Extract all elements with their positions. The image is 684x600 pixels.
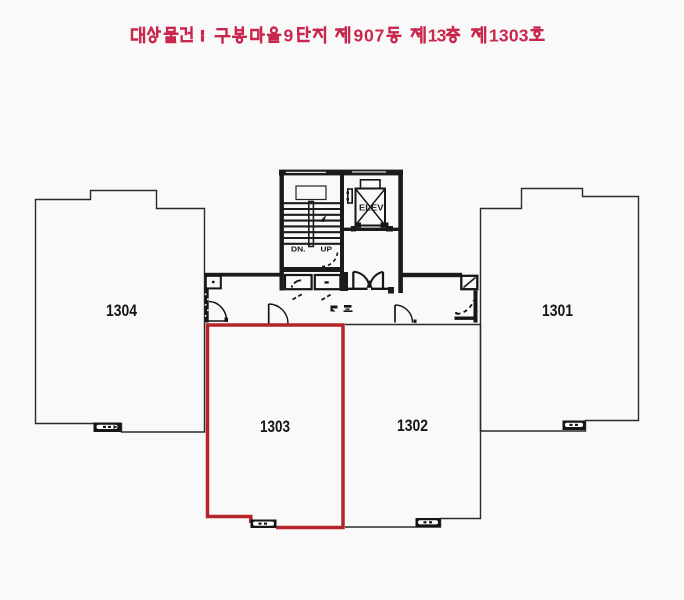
svg-text:1303: 1303	[260, 417, 290, 436]
svg-text:UP: UP	[321, 244, 333, 253]
svg-text:1302: 1302	[397, 416, 428, 435]
svg-text:13: 13	[428, 25, 447, 45]
svg-text:ELEV: ELEV	[359, 204, 384, 213]
svg-text:907: 907	[354, 25, 386, 45]
svg-text:9: 9	[284, 25, 294, 45]
svg-text:1301: 1301	[542, 301, 573, 320]
svg-text:DN.: DN.	[291, 244, 306, 253]
svg-text:1304: 1304	[106, 301, 137, 320]
svg-text:1303: 1303	[489, 25, 529, 45]
